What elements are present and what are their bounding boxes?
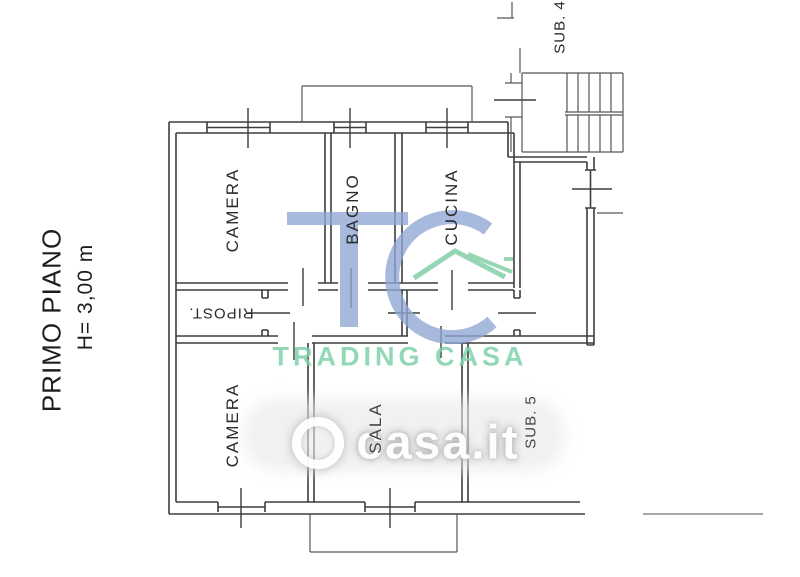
trading-casa-watermark-text: TRADING CASA	[273, 342, 528, 373]
floor-height-label: H= 3,00 m	[74, 244, 98, 350]
room-label-cucina: CUCINA	[442, 168, 462, 245]
room-label-sala: SALA	[366, 402, 386, 453]
casait-ring-icon	[292, 417, 344, 469]
floor-title: PRIMO PIANO	[37, 228, 68, 412]
room-label-camera-top: CAMERA	[223, 168, 243, 253]
floorplan-drawing	[0, 0, 800, 577]
floorplan-page: casa.it TRADING CASA PRIMO PIANO H= 3,00…	[0, 0, 800, 577]
room-label-bagno: BAGNO	[343, 173, 363, 244]
room-label-sub5: SUB. 5	[523, 395, 540, 449]
room-label-camera-bottom: CAMERA	[223, 383, 243, 468]
room-label-sub4: SUB. 4	[552, 0, 569, 54]
room-label-ripost: RIPOST.	[188, 305, 253, 322]
